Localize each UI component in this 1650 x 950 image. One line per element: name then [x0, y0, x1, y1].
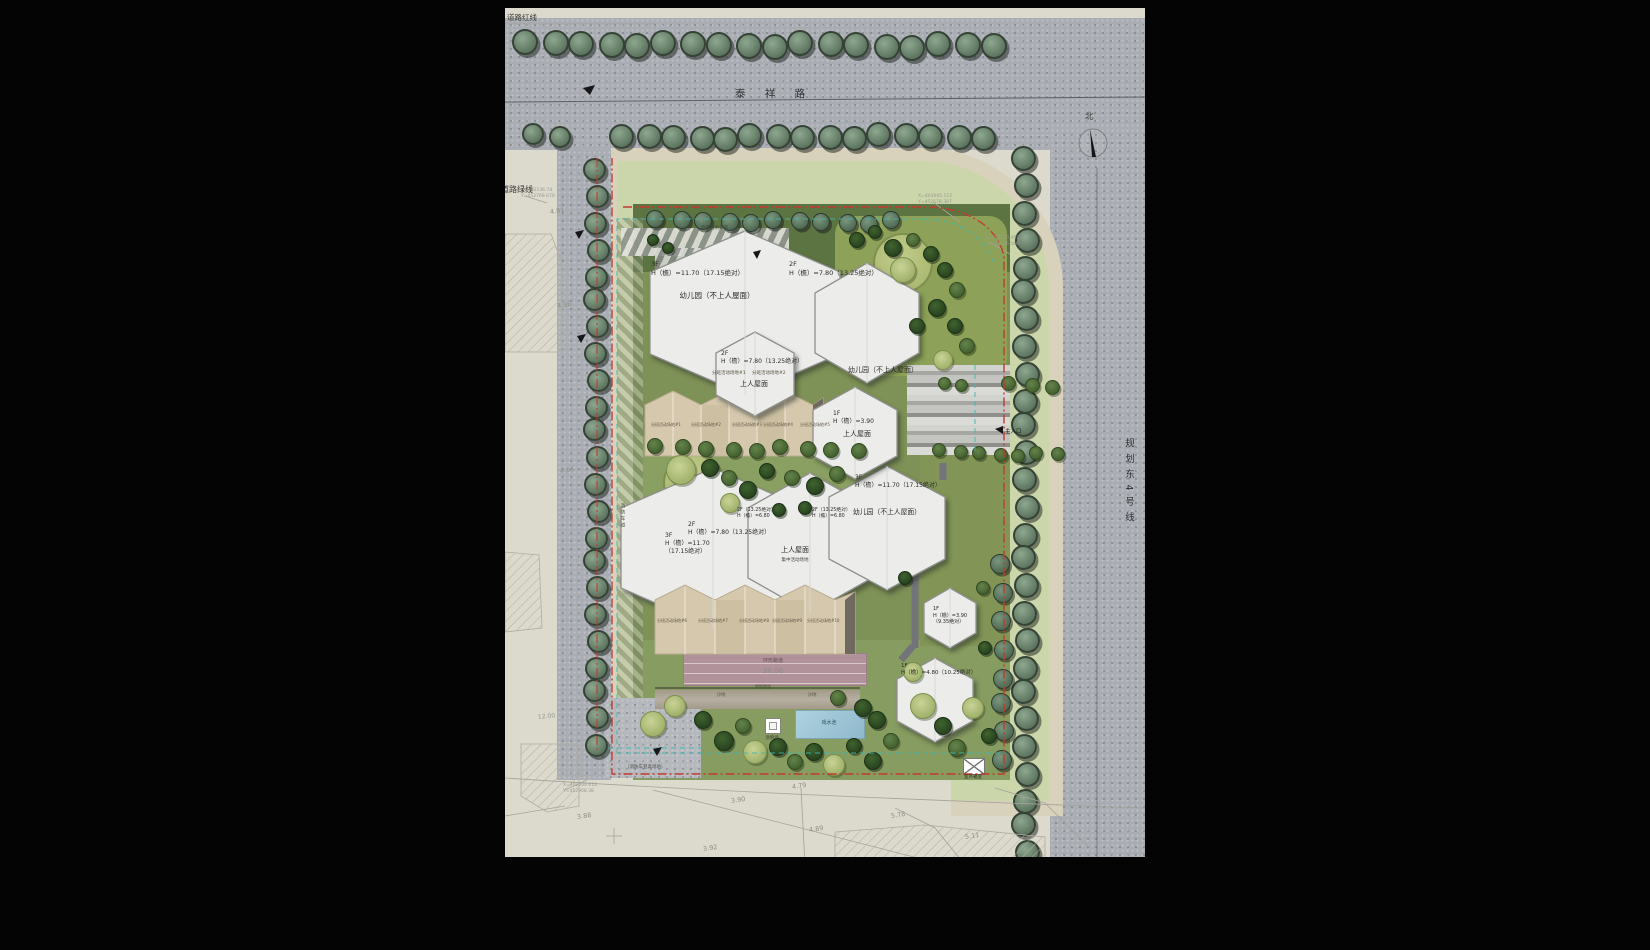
- annotation: 上人屋面: [740, 380, 768, 389]
- north-label: 北: [1085, 110, 1094, 122]
- annotation: 幼儿园（不上人屋面）: [680, 291, 755, 301]
- annotation: 4.89: [808, 824, 824, 835]
- annotation: 1F H（檐）=3.90: [833, 410, 874, 426]
- annotation: 4.79: [791, 781, 807, 792]
- annotation: 3F H（檐）=11.70 （17.15绝对）: [665, 532, 710, 556]
- annotation: 分班活动场地#1: [712, 371, 746, 377]
- annotation: 4.56: [556, 300, 572, 311]
- annotation: 塑胶跑道: [755, 684, 771, 689]
- annotation: 涂鸦墙: [765, 736, 779, 742]
- annotation: 分班活动场地#2: [752, 371, 786, 377]
- annotation: 5.11: [964, 831, 980, 842]
- annotation: 分班活动场地#1: [651, 422, 681, 427]
- annotation: 沙坑: [717, 693, 726, 699]
- annotation: 2F H（檐）=7.80（13.25绝对）: [789, 260, 878, 277]
- annotation: 消防车道: [619, 503, 625, 529]
- annotation: 1F H（檐）=4.80（10.25绝对）: [901, 663, 976, 678]
- annotation: 3F H（檐）=11.70（17.15绝对）: [855, 474, 941, 490]
- annotation: 分班活动场地#4: [763, 422, 793, 427]
- red-line-label: 道路红线: [507, 12, 537, 23]
- annotation: 4.65: [559, 465, 575, 476]
- annotation: 上人屋面: [781, 546, 809, 555]
- site-plan-canvas: 3F H（檐）=11.70（17.15绝对）幼儿园（不上人屋面）2F H（檐）=…: [0, 0, 1650, 950]
- plan-drawing: 3F H（檐）=11.70（17.15绝对）幼儿园（不上人屋面）2F H（檐）=…: [505, 8, 1145, 857]
- annotation: 3.90: [730, 795, 746, 806]
- annotation: 环形跑道: [763, 658, 783, 665]
- annotation: 2F（13.25绝对） H（檐）=6.80: [737, 508, 776, 521]
- annotation: 室外箱变: [964, 775, 982, 781]
- annotation: 分班活动场地#2: [691, 422, 721, 427]
- annotation: 3F H（檐）=11.70（17.15绝对）: [651, 260, 744, 277]
- road-top-label: 泰 祥 路: [735, 86, 813, 101]
- annotation: 分班活动场地#7: [698, 618, 728, 623]
- annotation: 戏水池: [821, 720, 836, 727]
- annotation: 分班活动场地#8: [739, 618, 769, 623]
- annotation: 沙坑: [808, 693, 817, 699]
- annotation: 隐形消防车道: [701, 226, 728, 232]
- annotation: X=403133.451 Y=452786.566: [985, 236, 1019, 248]
- annotation: 30.00: [763, 667, 783, 676]
- annotation: 2F（13.25绝对） H（檐）=6.80: [812, 508, 851, 521]
- green-line-label: 道路绿线: [505, 184, 533, 195]
- annotation: 分班活动场地#9: [772, 618, 802, 623]
- annotation: 1F H（檐）=3.90 （9.35绝对）: [933, 606, 967, 626]
- annotation: （消防车登高场地）: [625, 765, 666, 771]
- annotation: 5.78: [890, 810, 906, 821]
- annotation: 分班活动场地#10: [807, 618, 839, 623]
- annotation: 3.92: [702, 843, 718, 854]
- annotation: X=403045.112 Y=452578.387: [918, 194, 952, 206]
- annotation: 分班活动场地#6: [657, 618, 687, 623]
- annotation: 12.00: [538, 712, 556, 722]
- annotation: 4.81: [549, 206, 565, 217]
- annotation: 主入口: [1005, 429, 1022, 436]
- annotation: 2F H（檐）=7.80（13.25绝对）: [721, 350, 803, 366]
- annotation: X=402200.012 Y=452908.38: [563, 783, 597, 795]
- annotation: 集中活动场地: [782, 558, 809, 564]
- annotation: 幼儿园（不上人屋面）: [853, 508, 921, 517]
- annotations-layer: 3F H（檐）=11.70（17.15绝对）幼儿园（不上人屋面）2F H（檐）=…: [505, 8, 1145, 857]
- annotation: 幼儿园（不上人屋面）: [848, 366, 918, 375]
- annotation: 分班活动场地#3: [732, 422, 762, 427]
- annotation: 上人屋面: [843, 430, 871, 439]
- annotation: 3.88: [576, 811, 592, 822]
- annotation: 分班活动场地#5: [800, 422, 830, 427]
- road-right-label: 规划东4号线: [1121, 438, 1135, 528]
